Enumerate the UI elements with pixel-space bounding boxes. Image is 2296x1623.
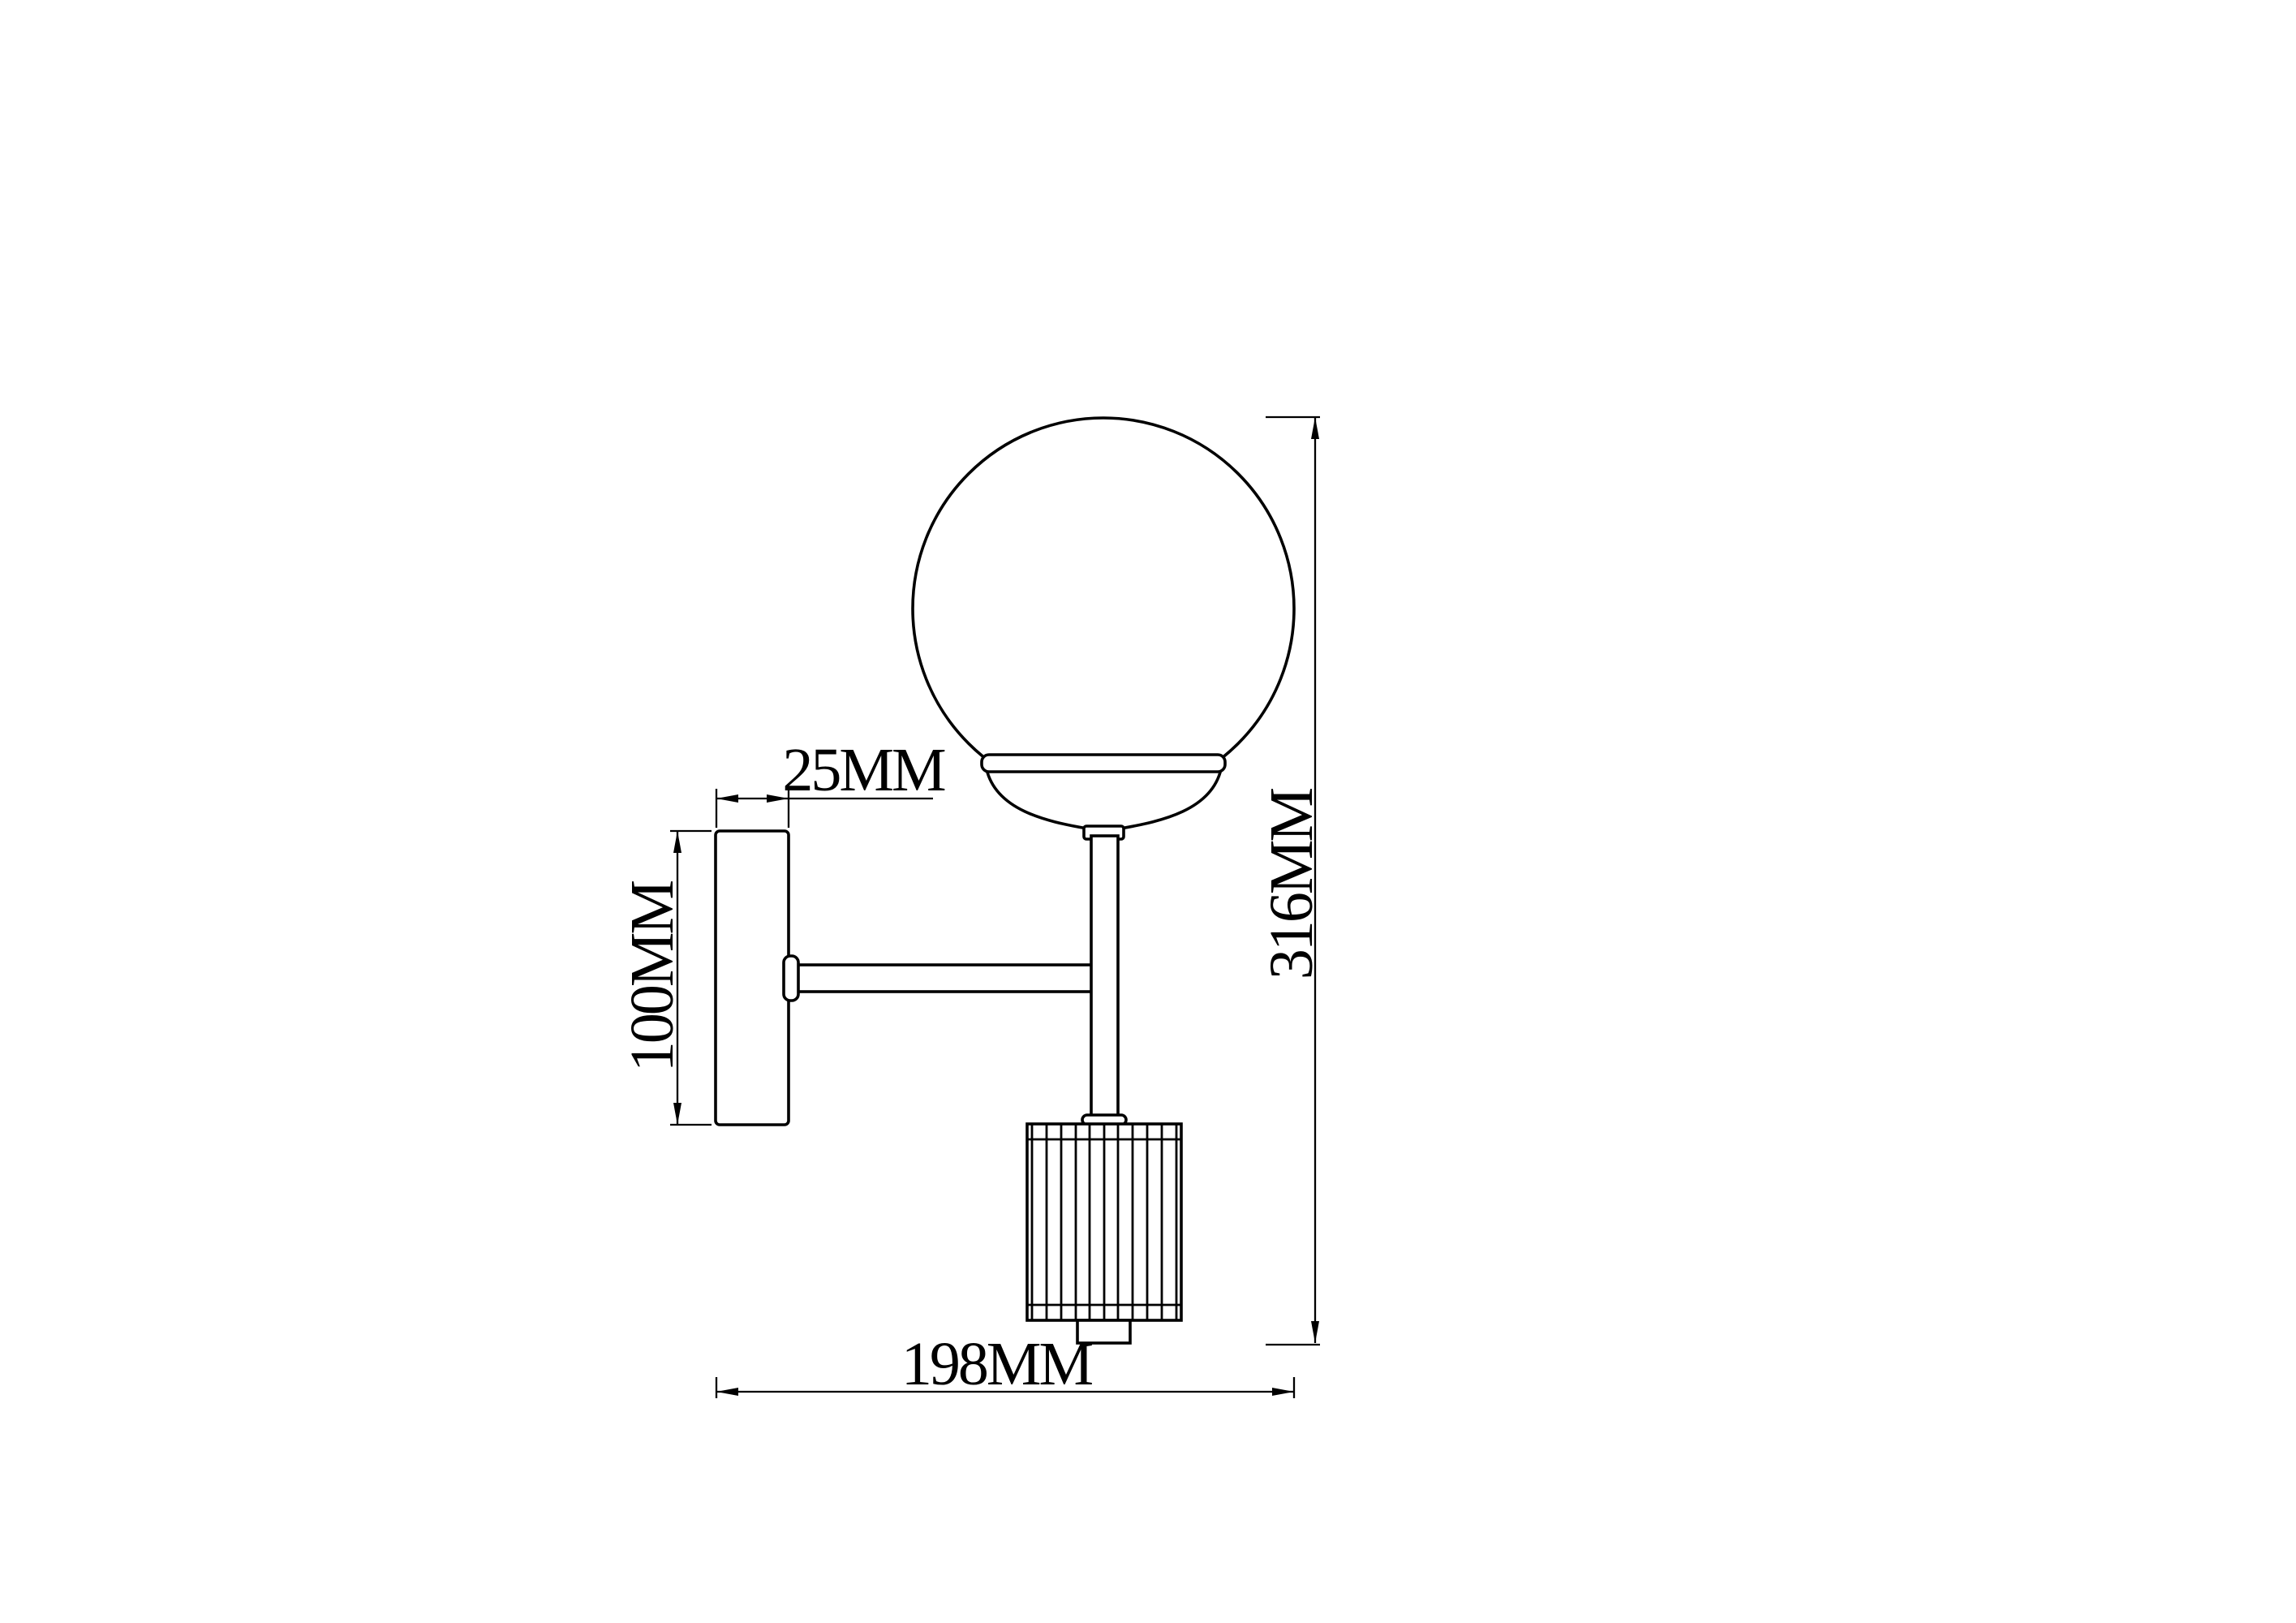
drawing-canvas: 25MM 100MM 316MM 198MM xyxy=(0,0,2296,1623)
dim-plate-height-label: 100MM xyxy=(618,881,686,1073)
vertical-stem xyxy=(1091,836,1118,1118)
shade-collar-flange xyxy=(982,755,1225,772)
dim-plate-width-label: 25MM xyxy=(782,736,945,804)
globe-shade-outline xyxy=(913,418,1294,799)
wall-sconce-dimension-drawing: 25MM 100MM 316MM 198MM xyxy=(0,0,2296,1623)
ribbed-cylinder xyxy=(1027,1124,1181,1343)
dim-total-depth-label: 198MM xyxy=(901,1330,1093,1398)
dim-total-height-label: 316MM xyxy=(1258,789,1326,980)
wall-mount-plate xyxy=(716,831,789,1125)
mounting-arm xyxy=(795,965,1095,992)
arm-mount-tab xyxy=(784,956,798,1001)
